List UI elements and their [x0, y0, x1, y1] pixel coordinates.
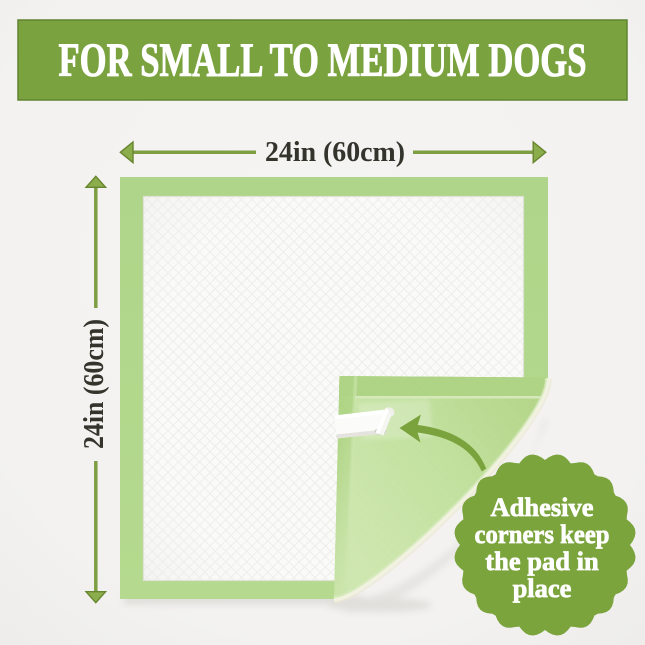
- svg-text:the pad in: the pad in: [485, 546, 599, 576]
- svg-text:place: place: [513, 573, 572, 603]
- svg-text:Adhesive: Adhesive: [490, 492, 593, 522]
- svg-text:FOR SMALL TO MEDIUM DOGS: FOR SMALL TO MEDIUM DOGS: [59, 34, 587, 87]
- svg-text:corners keep: corners keep: [475, 519, 610, 549]
- svg-text:24in (60cm): 24in (60cm): [265, 137, 405, 168]
- svg-text:24in (60cm): 24in (60cm): [79, 319, 110, 449]
